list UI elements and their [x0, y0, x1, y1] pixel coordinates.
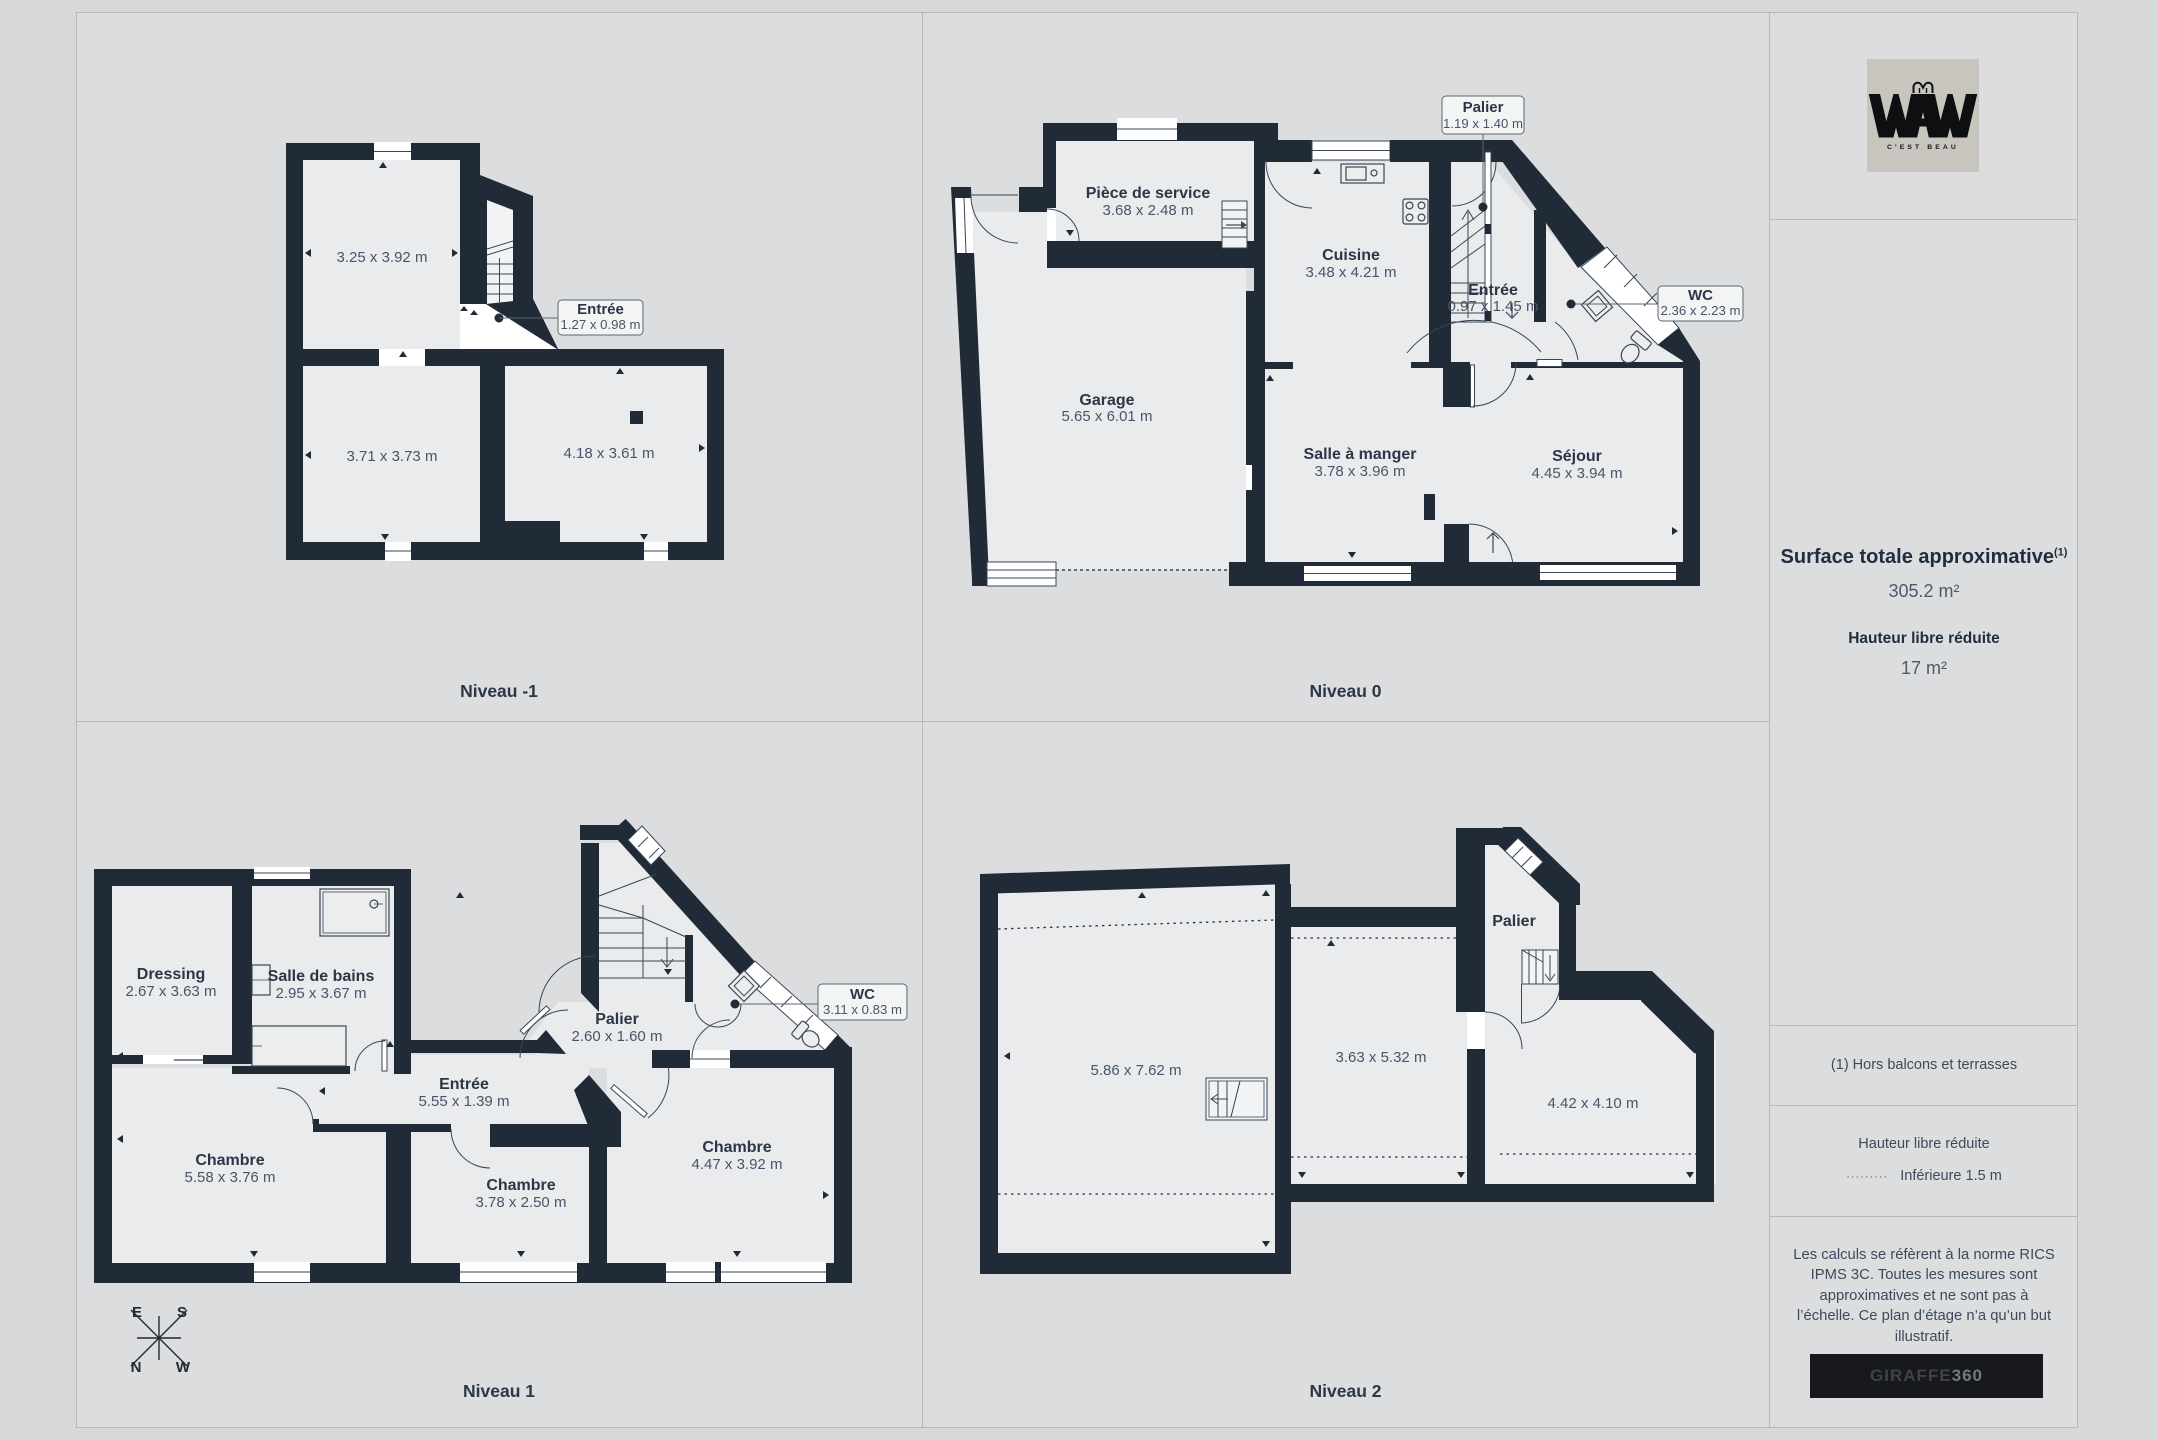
- svg-text:N: N: [131, 1359, 142, 1376]
- svg-text:Séjour: Séjour: [1552, 448, 1602, 465]
- svg-text:3.63 x 5.32 m: 3.63 x 5.32 m: [1336, 1049, 1427, 1066]
- svg-text:WC: WC: [1688, 287, 1713, 304]
- svg-text:Niveau -1: Niveau -1: [460, 681, 538, 701]
- svg-text:4.42 x 4.10 m: 4.42 x 4.10 m: [1548, 1095, 1639, 1112]
- svg-text:3.71 x 3.73 m: 3.71 x 3.73 m: [347, 448, 438, 465]
- svg-text:5.86 x 7.62 m: 5.86 x 7.62 m: [1091, 1062, 1182, 1079]
- svg-text:1.27 x 0.98 m: 1.27 x 0.98 m: [561, 317, 641, 332]
- svg-text:Pièce de service: Pièce de service: [1086, 185, 1211, 202]
- svg-text:Cuisine: Cuisine: [1322, 247, 1380, 264]
- svg-text:3.78 x 3.96 m: 3.78 x 3.96 m: [1315, 463, 1406, 480]
- svg-text:5.65 x 6.01 m: 5.65 x 6.01 m: [1062, 408, 1153, 425]
- svg-text:3.68 x 2.48 m: 3.68 x 2.48 m: [1103, 202, 1194, 219]
- svg-text:4.45 x 3.94 m: 4.45 x 3.94 m: [1532, 465, 1623, 482]
- svg-text:Chambre: Chambre: [702, 1139, 771, 1156]
- svg-text:3.78 x 2.50 m: 3.78 x 2.50 m: [476, 1194, 567, 1211]
- svg-text:S: S: [177, 1304, 187, 1321]
- svg-text:2.67 x 3.63 m: 2.67 x 3.63 m: [126, 983, 217, 1000]
- svg-text:Niveau 2: Niveau 2: [1310, 1381, 1382, 1401]
- svg-text:4.18 x 3.61 m: 4.18 x 3.61 m: [564, 445, 655, 462]
- svg-text:Entrée: Entrée: [577, 301, 624, 318]
- svg-text:5.58 x 3.76 m: 5.58 x 3.76 m: [185, 1169, 276, 1186]
- svg-text:Entrée: Entrée: [1468, 282, 1518, 299]
- svg-text:3.48 x 4.21 m: 3.48 x 4.21 m: [1306, 264, 1397, 281]
- svg-text:E: E: [132, 1304, 142, 1321]
- svg-text:C'EST BEAU: C'EST BEAU: [1887, 144, 1959, 151]
- svg-text:Chambre: Chambre: [195, 1152, 264, 1169]
- svg-text:W: W: [176, 1359, 191, 1376]
- svg-text:WC: WC: [850, 986, 875, 1003]
- svg-text:Dressing: Dressing: [137, 966, 205, 983]
- svg-text:Palier: Palier: [1463, 99, 1504, 116]
- svg-text:2.36 x 2.23 m: 2.36 x 2.23 m: [1661, 303, 1741, 318]
- svg-text:Salle de bains: Salle de bains: [268, 968, 375, 985]
- svg-text:Garage: Garage: [1079, 392, 1134, 409]
- svg-text:2.60 x 1.60 m: 2.60 x 1.60 m: [572, 1028, 663, 1045]
- svg-text:Entrée: Entrée: [439, 1076, 489, 1093]
- svg-text:2.95 x 3.67 m: 2.95 x 3.67 m: [276, 985, 367, 1002]
- svg-text:Palier: Palier: [595, 1011, 639, 1028]
- svg-text:1.19 x 1.40 m: 1.19 x 1.40 m: [1443, 116, 1523, 131]
- svg-text:Niveau 1: Niveau 1: [463, 1381, 535, 1401]
- svg-text:Salle à manger: Salle à manger: [1304, 446, 1417, 463]
- svg-text:0.97 x 1.45 m: 0.97 x 1.45 m: [1448, 298, 1539, 315]
- svg-text:Palier: Palier: [1492, 913, 1536, 930]
- svg-text:Niveau 0: Niveau 0: [1310, 681, 1382, 701]
- svg-text:Chambre: Chambre: [486, 1177, 555, 1194]
- svg-text:4.47 x 3.92 m: 4.47 x 3.92 m: [692, 1156, 783, 1173]
- svg-text:3.25 x 3.92 m: 3.25 x 3.92 m: [337, 249, 428, 266]
- svg-text:5.55 x 1.39 m: 5.55 x 1.39 m: [419, 1093, 510, 1110]
- svg-text:3.11 x 0.83 m: 3.11 x 0.83 m: [823, 1002, 902, 1017]
